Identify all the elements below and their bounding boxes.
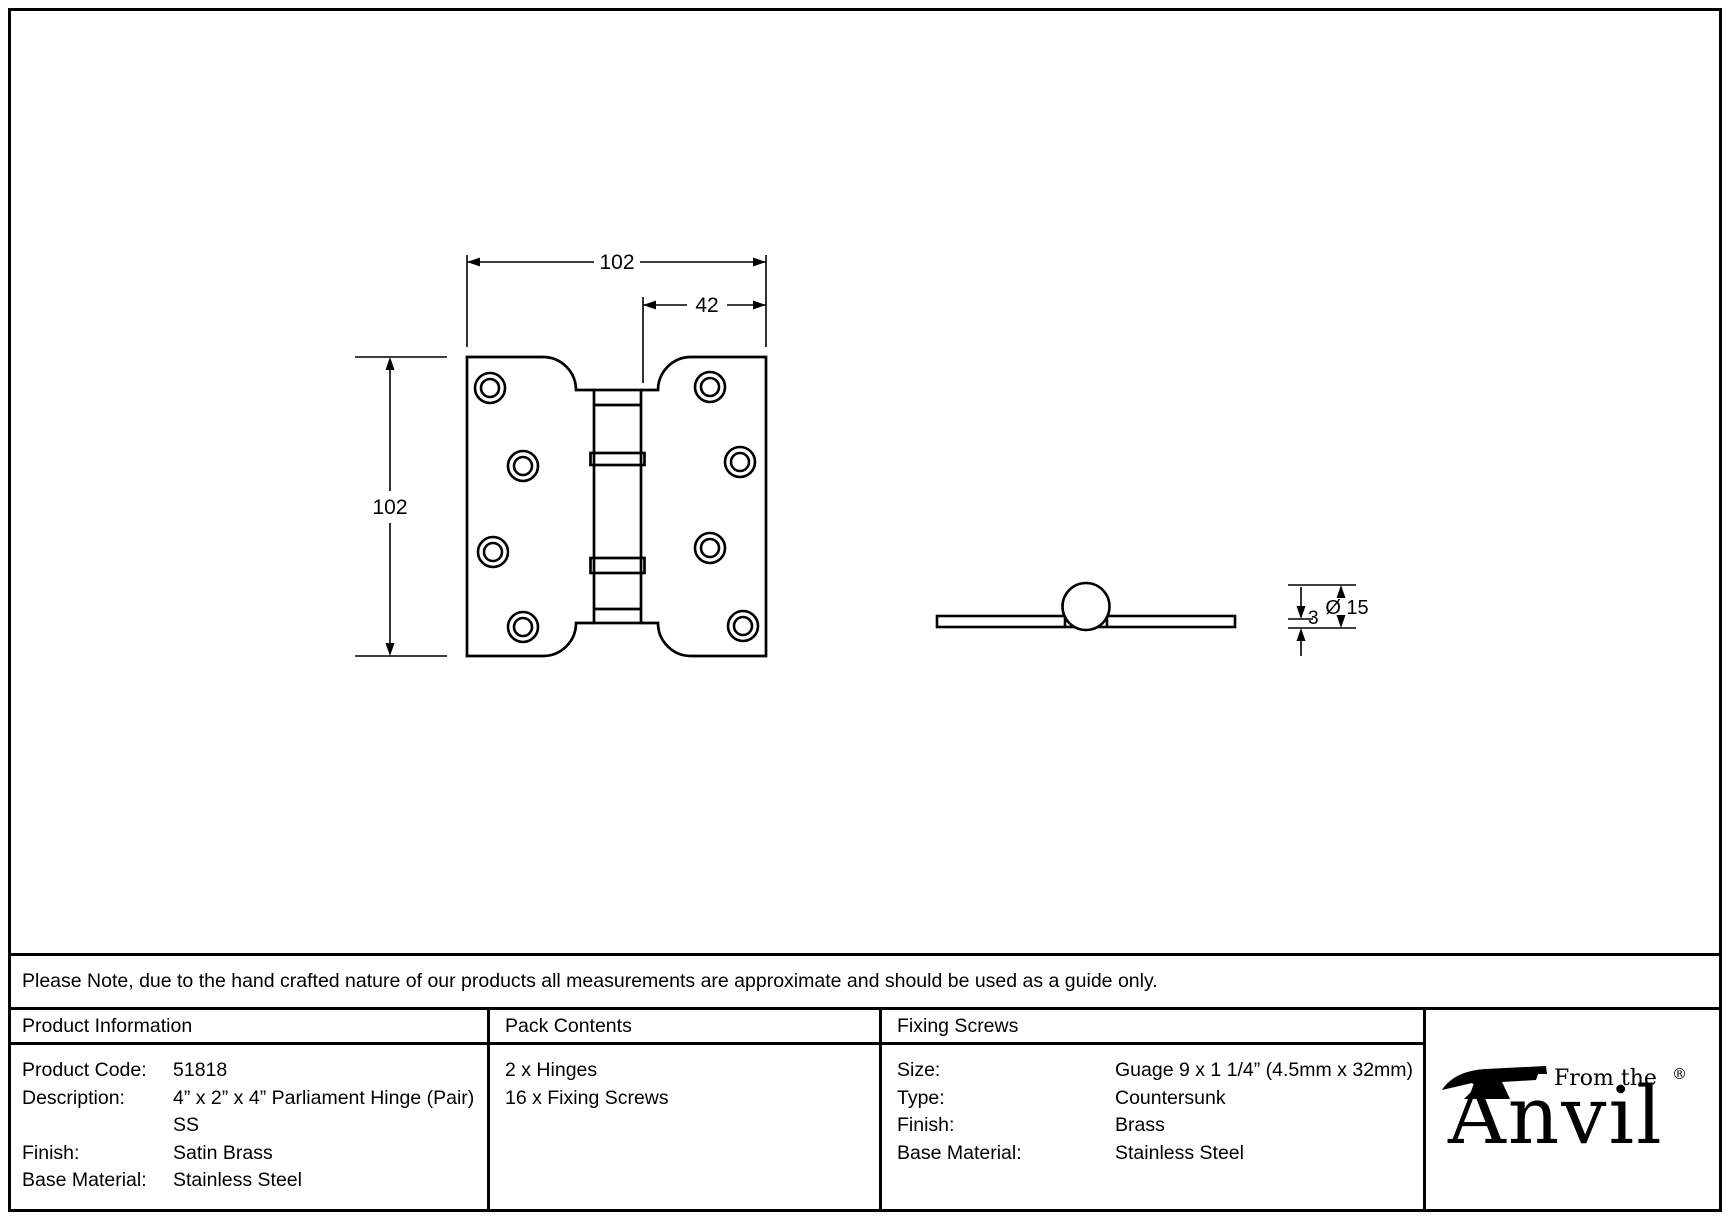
screw-finish-row: Finish: Brass — [897, 1112, 1423, 1140]
finish-row: Finish: Satin Brass — [22, 1140, 479, 1168]
hinge-knuckle — [594, 390, 641, 623]
pack-contents-header-cell: Pack Contents — [490, 1007, 882, 1045]
bearing-ring-top — [591, 453, 645, 465]
dimension-diameter-label: Ø 15 — [1325, 597, 1368, 619]
screw-base-material-row: Base Material: Stainless Steel — [897, 1140, 1423, 1168]
base-material-value: Stainless Steel — [173, 1167, 479, 1195]
screw-hole — [728, 611, 758, 641]
knuckle-profile — [1063, 583, 1110, 630]
pack-contents-header: Pack Contents — [490, 1015, 632, 1038]
fixing-screws-header: Fixing Screws — [882, 1015, 1018, 1038]
screw-size-row: Size: Guage 9 x 1 1/4” (4.5mm x 32mm) — [897, 1057, 1423, 1085]
fixing-screws-header-cell: Fixing Screws — [882, 1007, 1423, 1045]
screw-hole — [475, 373, 505, 403]
screw-hole — [725, 447, 755, 477]
screw-finish-value: Brass — [1115, 1112, 1423, 1140]
description-label: Description: — [22, 1085, 173, 1140]
description-value: 4” x 2” x 4” Parliament Hinge (Pair) SS — [173, 1085, 479, 1140]
product-code-row: Product Code: 51818 — [22, 1057, 479, 1085]
hinge-front-view — [467, 357, 766, 656]
product-code-value: 51818 — [173, 1057, 479, 1085]
bearing-ring-bottom — [591, 558, 645, 573]
spec-sheet-page: 102 42 102 3 Ø 15 Please Note, due to — [0, 0, 1730, 1217]
logo-tagline: From the — [1554, 1066, 1657, 1091]
screw-finish-label: Finish: — [897, 1112, 1115, 1140]
logo-cell: Anvil From the ® — [1423, 1007, 1722, 1212]
screw-hole — [695, 533, 725, 563]
screw-size-label: Size: — [897, 1057, 1115, 1085]
finish-label: Finish: — [22, 1140, 173, 1168]
screw-base-material-label: Base Material: — [897, 1140, 1115, 1168]
fixing-screws-cell: Size: Guage 9 x 1 1/4” (4.5mm x 32mm) Ty… — [882, 1045, 1423, 1212]
product-information-cell: Product Code: 51818 Description: 4” x 2”… — [8, 1045, 490, 1212]
product-information-header-cell: Product Information — [8, 1007, 490, 1045]
screw-hole — [695, 372, 725, 402]
dimension-height-label: 102 — [372, 496, 407, 519]
screw-size-value: Guage 9 x 1 1/4” (4.5mm x 32mm) — [1115, 1057, 1423, 1085]
screw-base-material-value: Stainless Steel — [1115, 1140, 1423, 1168]
technical-drawing: 102 42 102 3 Ø 15 — [0, 0, 1730, 960]
note-row: Please Note, due to the hand crafted nat… — [8, 953, 1722, 1007]
screw-type-row: Type: Countersunk — [897, 1085, 1423, 1113]
finish-value: Satin Brass — [173, 1140, 479, 1168]
pack-contents-cell: 2 x Hinges 16 x Fixing Screws — [490, 1045, 882, 1212]
screw-hole — [508, 612, 538, 642]
product-information-header: Product Information — [8, 1015, 192, 1038]
front-view-dimension-arrows — [386, 258, 767, 657]
base-material-row: Base Material: Stainless Steel — [22, 1167, 479, 1195]
screw-type-label: Type: — [897, 1085, 1115, 1113]
screw-hole — [508, 451, 538, 481]
description-row: Description: 4” x 2” x 4” Parliament Hin… — [22, 1085, 479, 1140]
pack-contents-item: 16 x Fixing Screws — [505, 1085, 879, 1113]
dimension-thickness-label: 3 — [1308, 608, 1319, 629]
hinge-side-view — [937, 583, 1235, 630]
from-the-anvil-logo: Anvil From the ® — [1442, 1057, 1707, 1153]
product-code-label: Product Code: — [22, 1057, 173, 1085]
screw-holes — [475, 372, 758, 642]
registered-trademark-icon: ® — [1672, 1065, 1687, 1083]
screw-type-value: Countersunk — [1115, 1085, 1423, 1113]
base-material-label: Base Material: — [22, 1167, 173, 1195]
screw-hole — [478, 537, 508, 567]
side-view-dimensions — [1288, 585, 1356, 656]
pack-contents-item: 2 x Hinges — [505, 1057, 879, 1085]
measurement-note: Please Note, due to the hand crafted nat… — [8, 970, 1158, 993]
dimension-inset-label: 42 — [695, 294, 718, 317]
dimension-width-label: 102 — [599, 251, 634, 274]
